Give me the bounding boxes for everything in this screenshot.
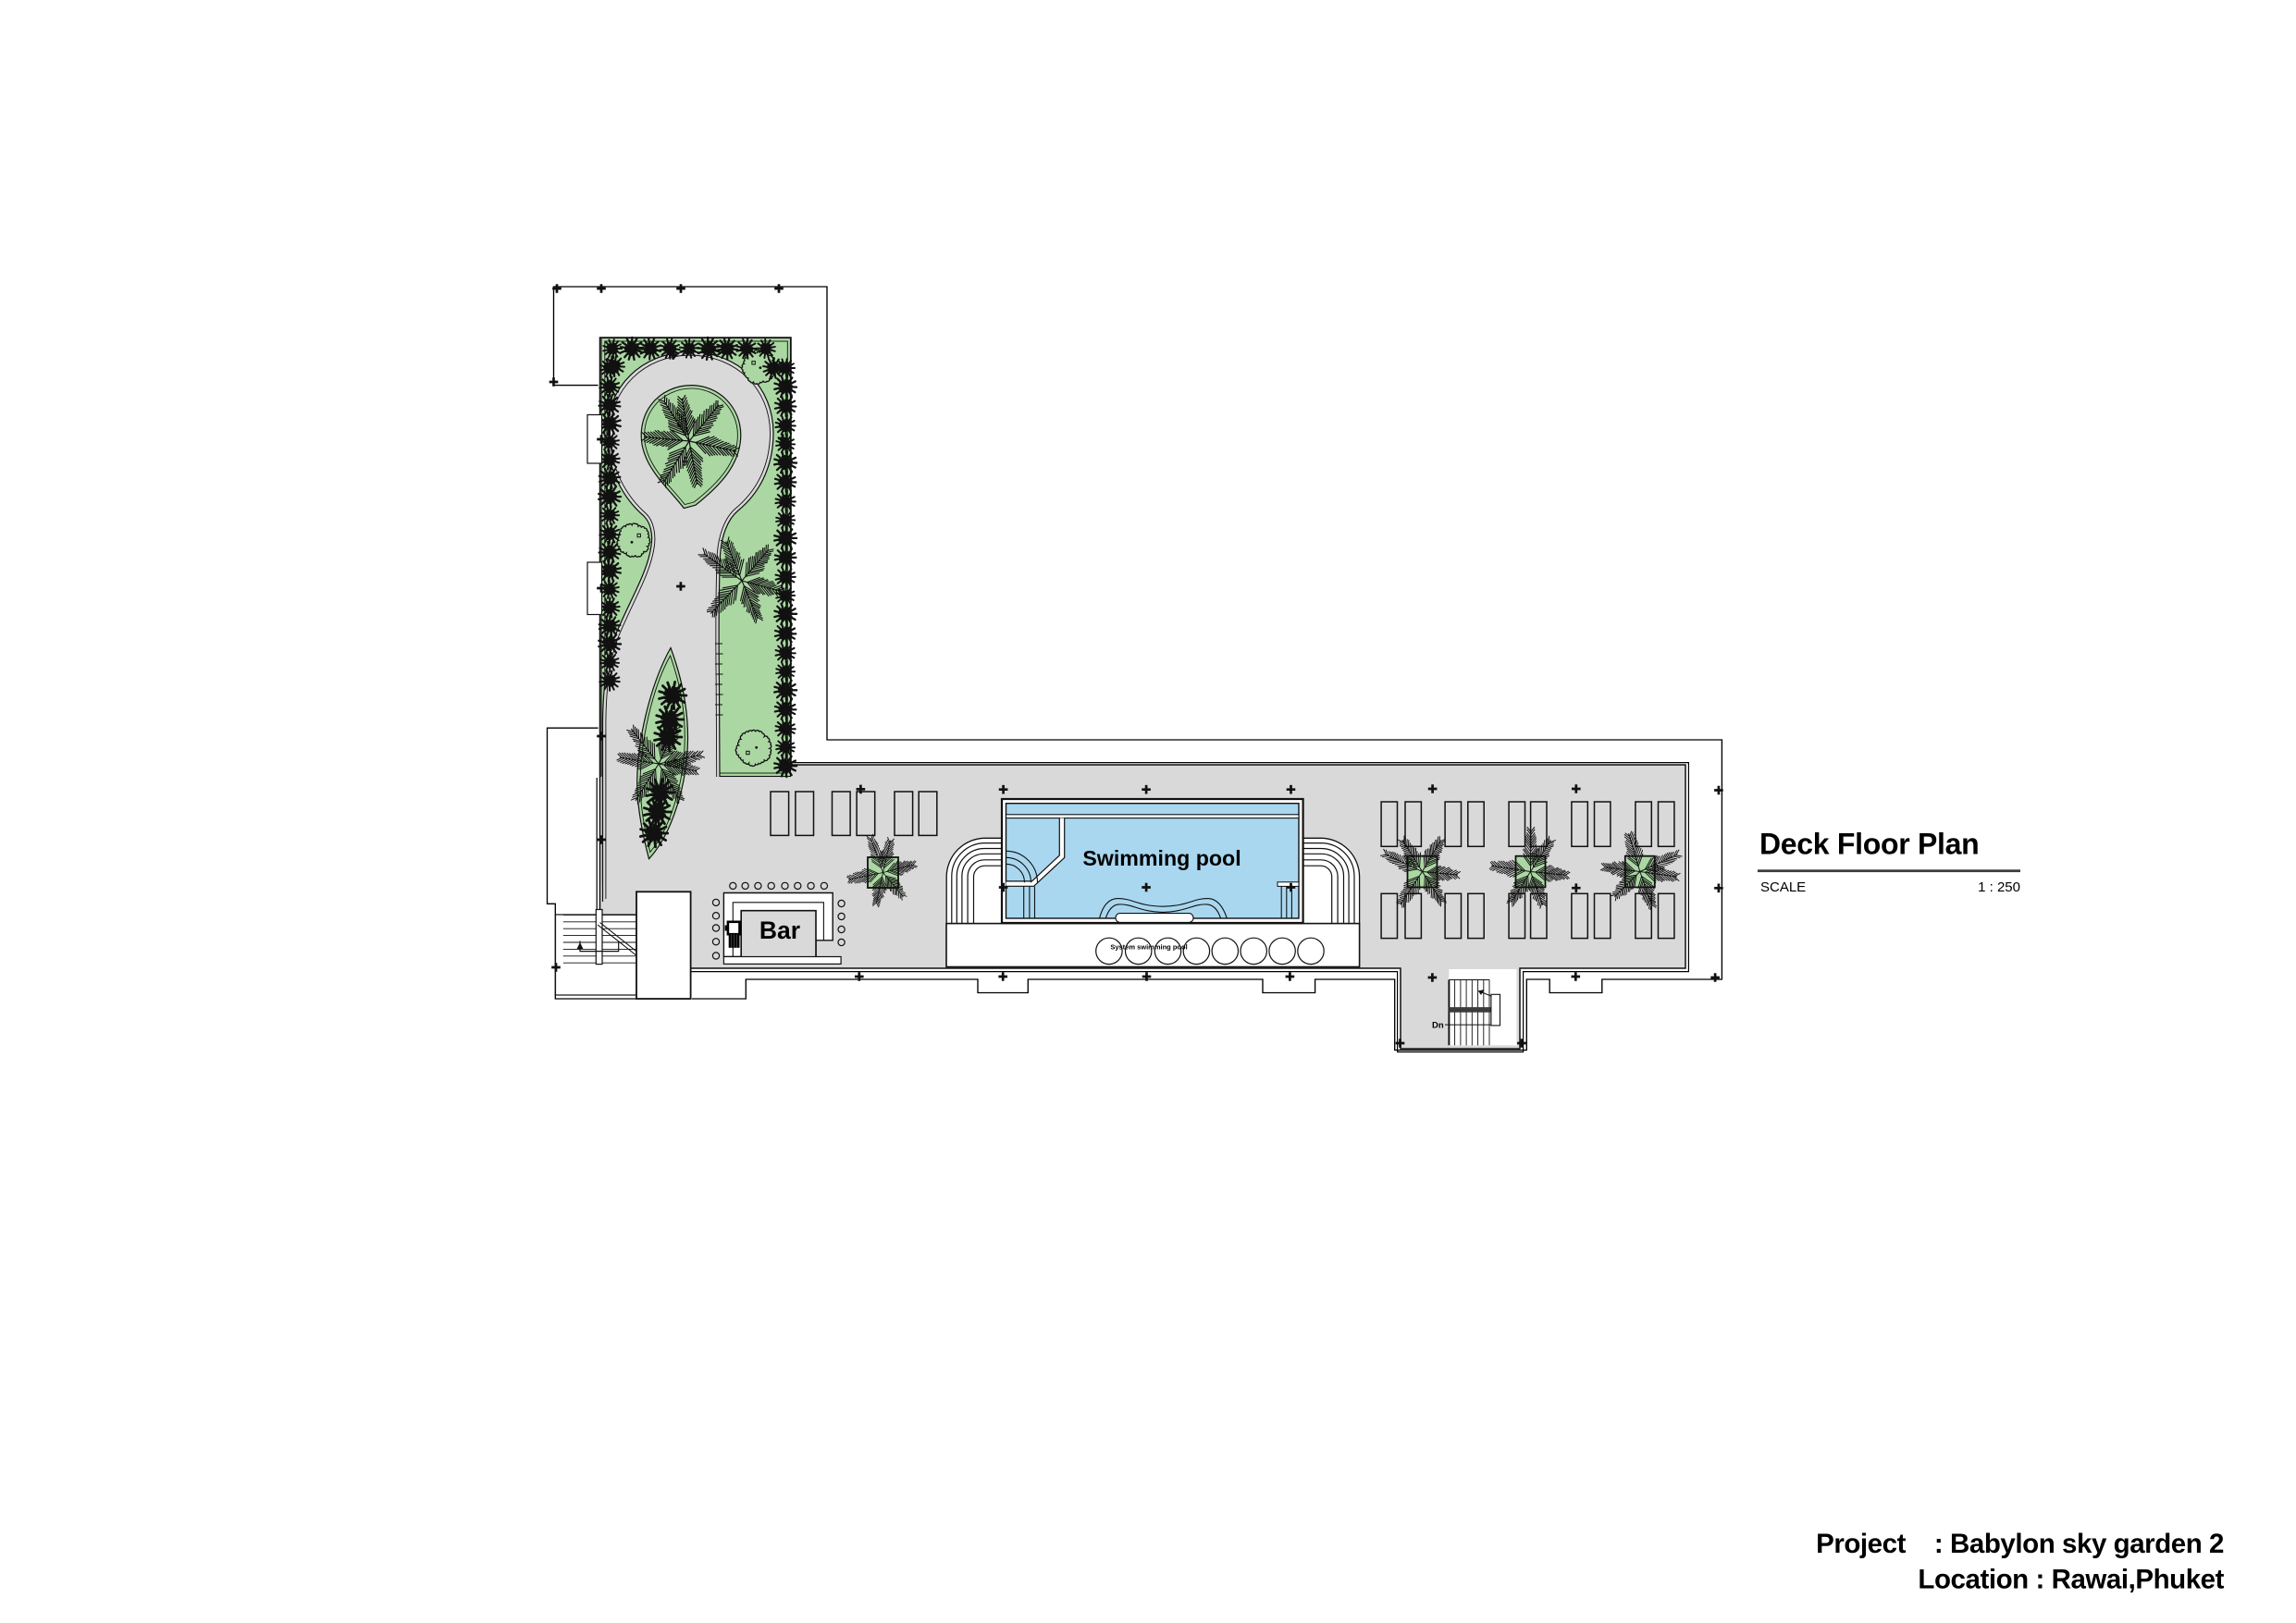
svg-text:Bar: Bar bbox=[759, 916, 800, 944]
svg-text:Location : Rawai,Phuket: Location : Rawai,Phuket bbox=[1918, 1565, 2224, 1595]
svg-text:Swimming pool: Swimming pool bbox=[1082, 846, 1241, 870]
svg-text:1 : 250: 1 : 250 bbox=[1978, 879, 2020, 895]
svg-text:Project : Babylon sky garde: Project : Babylon sky garden 2 bbox=[1816, 1529, 2224, 1559]
svg-text:SCALE: SCALE bbox=[1760, 879, 1806, 895]
svg-text:System swimming pool: System swimming pool bbox=[1110, 943, 1187, 952]
svg-text:Dn: Dn bbox=[1432, 1021, 1444, 1031]
svg-text:Deck Floor Plan: Deck Floor Plan bbox=[1759, 828, 1979, 861]
